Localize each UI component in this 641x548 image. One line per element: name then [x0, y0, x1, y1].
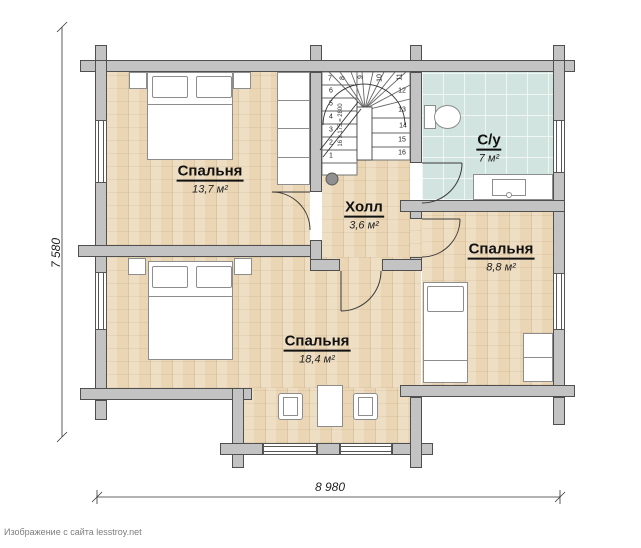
dimension-width-label: 8 980: [315, 480, 345, 494]
pillow: [427, 286, 464, 312]
room-area: 3,6 м²: [344, 219, 384, 231]
pillow: [152, 266, 188, 288]
pillow: [196, 266, 232, 288]
wall-bay-right: [410, 397, 422, 468]
stair-step-number: 3: [329, 127, 333, 134]
nightstand: [234, 258, 252, 275]
wall-mid-right: [400, 200, 565, 212]
chair-seat: [283, 397, 298, 416]
window: [553, 273, 565, 330]
nightstand: [233, 72, 251, 89]
room-name: С/у: [476, 133, 501, 151]
pillow: [196, 76, 232, 98]
room-label-hall: Холл 3,6 м²: [344, 199, 384, 232]
log-stub: [310, 45, 322, 61]
stair-step-number: 12: [398, 88, 406, 95]
window: [95, 272, 107, 330]
wall-right: [553, 60, 565, 397]
closet-shelf: [277, 128, 310, 129]
toilet-bowl: [434, 105, 461, 129]
wall-stair-left: [310, 72, 322, 192]
sink-tap: [506, 192, 512, 198]
stair-formula: 16 х 175 = 2800: [338, 103, 344, 146]
floor-doorway-small: [410, 219, 422, 257]
stair-step-number: 15: [398, 137, 406, 144]
stair-step-number: 5: [329, 101, 333, 108]
stair-step-number: 8: [340, 76, 347, 80]
watermark: Изображение с сайта lesstroy.net: [4, 527, 142, 537]
dimension-height-label: 7 580: [49, 238, 63, 268]
cabinet-divider: [523, 357, 553, 358]
wall-bay-bottom: [317, 443, 340, 455]
table: [317, 385, 343, 427]
window: [340, 443, 392, 455]
bed-foot-line: [424, 360, 467, 361]
log-stub: [95, 45, 107, 61]
blanket-line: [149, 296, 232, 297]
room-name: Спальня: [468, 242, 535, 260]
window: [263, 443, 317, 455]
room-label-bathroom: С/у 7 м²: [476, 132, 501, 165]
wall-hall-bottom: [310, 259, 340, 271]
wall-bay-bottom: [220, 443, 263, 455]
stair-step-number: 11: [397, 73, 404, 80]
stair-step-number: 14: [399, 123, 407, 130]
stair-step-number: 6: [329, 88, 333, 95]
closet-shelf: [277, 100, 310, 101]
floor-plan: 1 2 3 4 5 6 7 8 9 10 11 12 13 14 15 16 1…: [0, 0, 641, 548]
stair-step-number: 16: [398, 150, 406, 157]
window: [553, 120, 565, 173]
wall-bay-left: [232, 388, 244, 468]
wall-left: [95, 60, 107, 400]
wall-hall-right: [410, 72, 422, 163]
stair-step-number: 1: [329, 153, 333, 160]
room-area: 18,4 м²: [284, 353, 351, 365]
room-name: Холл: [344, 200, 384, 218]
room-label-bedroom-bottom: Спальня 18,4 м²: [284, 333, 351, 366]
room-label-bedroom-small: Спальня 8,8 м²: [468, 241, 535, 274]
stair-step-number: 9: [358, 75, 365, 79]
wall-bottom-right: [400, 385, 575, 397]
stair-step-number: 4: [329, 114, 333, 121]
stair-step-number: 2: [329, 140, 333, 147]
pillow: [152, 76, 188, 98]
stair-step-number: 7: [328, 76, 332, 83]
log-stub: [553, 397, 565, 425]
room-area: 13,7 м²: [177, 183, 244, 195]
chair-seat: [358, 397, 373, 416]
blanket-line: [148, 104, 232, 105]
wall-mid-left: [78, 245, 322, 257]
room-area: 8,8 м²: [468, 261, 535, 273]
room-label-bedroom-top: Спальня 13,7 м²: [177, 163, 244, 196]
room-name: Спальня: [177, 164, 244, 182]
nightstand: [129, 72, 147, 89]
room-area: 7 м²: [476, 152, 501, 164]
wall-bottom-left: [80, 388, 252, 400]
wall-top: [80, 60, 575, 72]
log-stub: [410, 45, 422, 61]
stair-step-number: 10: [377, 74, 384, 82]
window: [95, 120, 107, 183]
wall-hall-bottom: [382, 259, 422, 271]
room-name: Спальня: [284, 334, 351, 352]
log-stub: [553, 45, 565, 61]
stair-step-number: 13: [398, 107, 406, 114]
nightstand: [128, 258, 146, 275]
log-stub: [95, 400, 107, 420]
closet-shelf: [277, 157, 310, 158]
